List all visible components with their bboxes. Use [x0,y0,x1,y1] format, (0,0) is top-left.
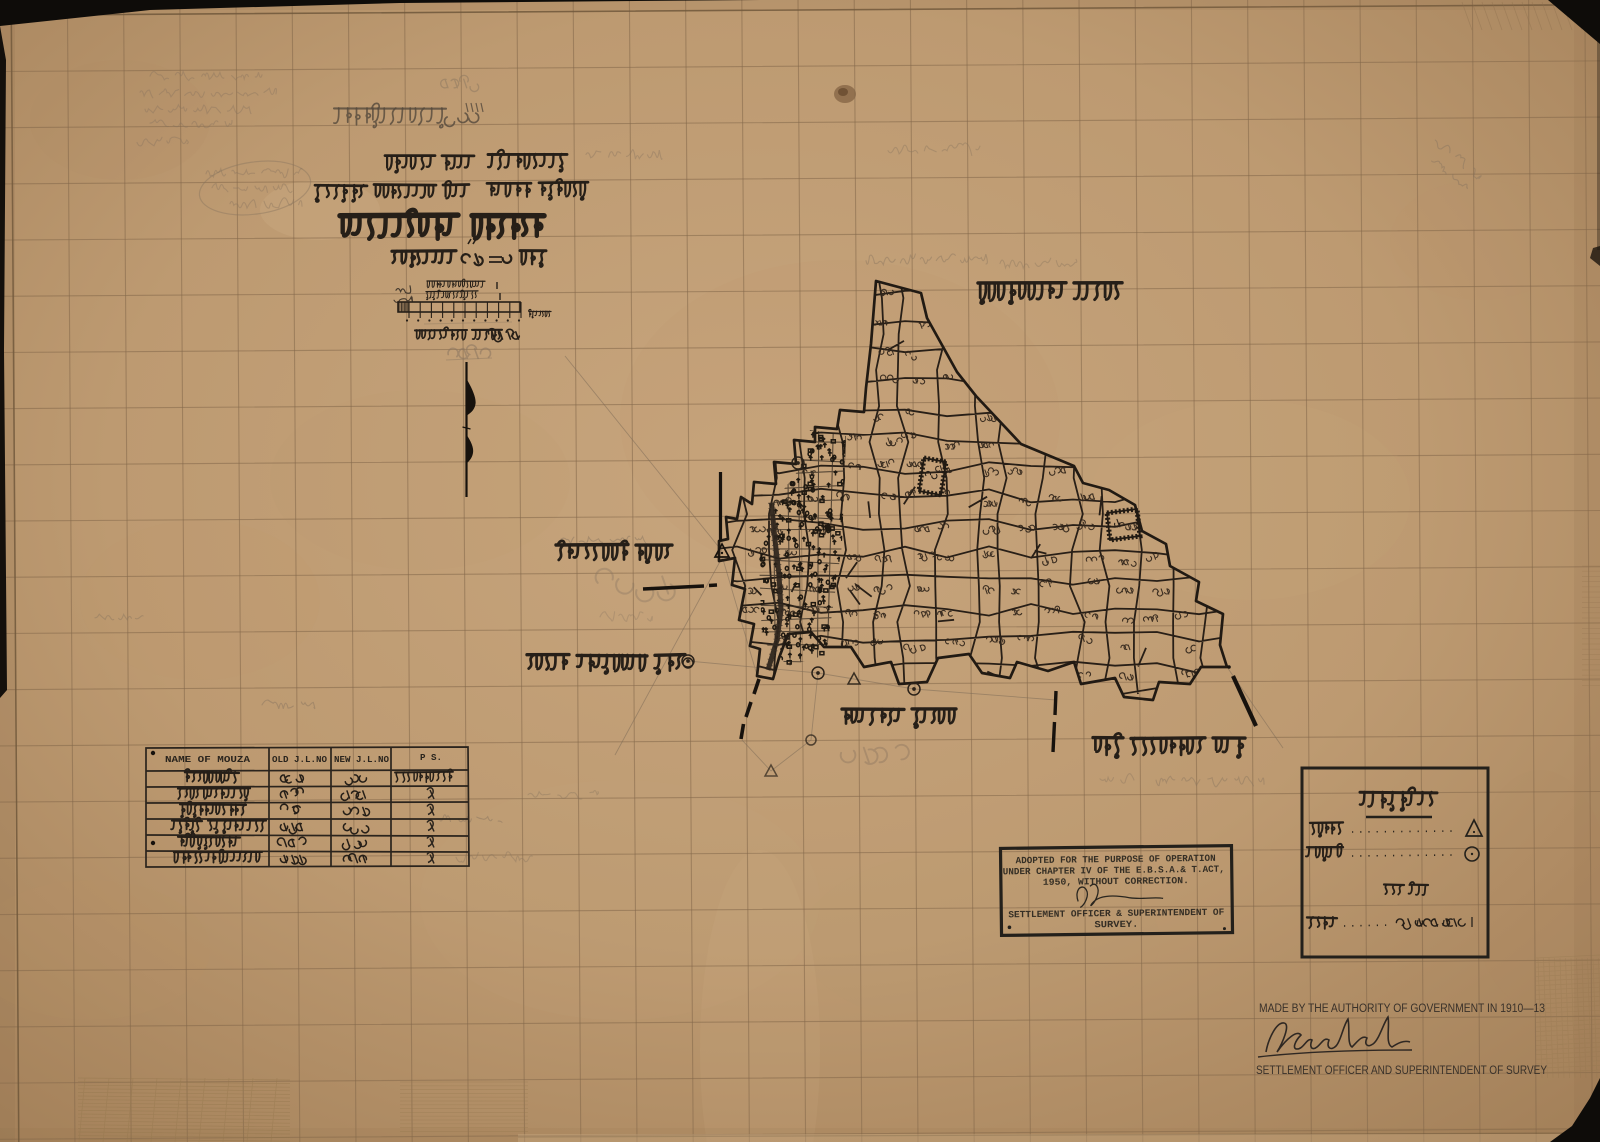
svg-text:NAME OF MOUZA: NAME OF MOUZA [165,754,250,765]
svg-text:OLD J.L.NO: OLD J.L.NO [272,754,327,765]
svg-text:SURVEY.: SURVEY. [1094,919,1138,931]
svg-text:SETTLEMENT OFFICER AND SUPERIN: SETTLEMENT OFFICER AND SUPERINTENDENT OF… [1256,1063,1547,1077]
svg-text:NEW J.L.NO: NEW J.L.NO [334,754,389,765]
svg-text:P S.: P S. [420,752,442,763]
svg-text:1950, WITHOUT CORRECTION.: 1950, WITHOUT CORRECTION. [1043,875,1189,888]
svg-text:MADE BY THE AUTHORITY OF GOVER: MADE BY THE AUTHORITY OF GOVERNMENT IN 1… [1259,1001,1545,1015]
